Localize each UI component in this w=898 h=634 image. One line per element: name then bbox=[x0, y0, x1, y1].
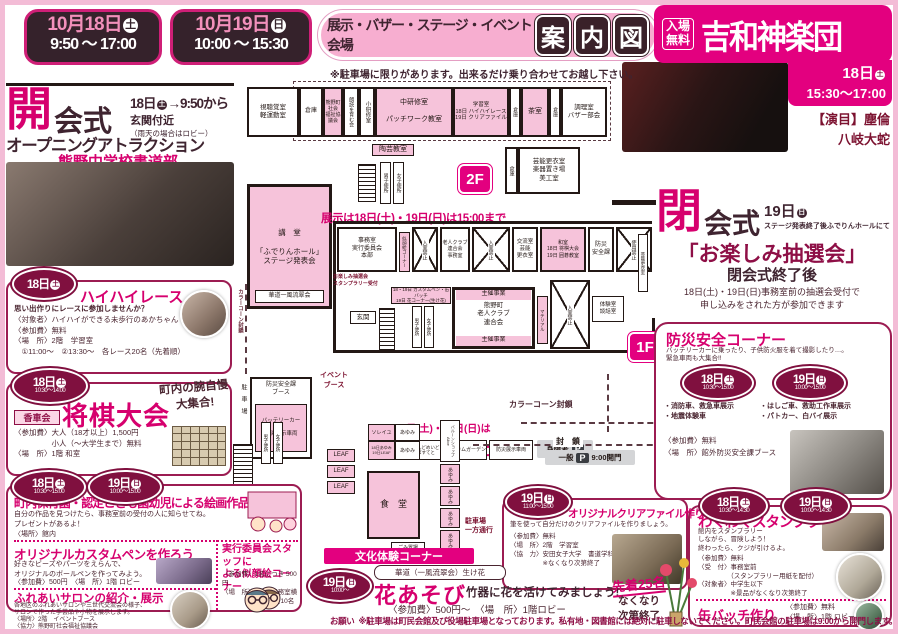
bousai-items-19: ・はしご車、救助工作車展示 ・パトカー、白バイ展示 bbox=[760, 402, 851, 422]
map-entrance: 玄関 bbox=[350, 311, 376, 324]
kaiga-desc: 自分の作品を見つけたら、事務室前の受付の人に知らせてね。 プレゼントがあるよ！ bbox=[14, 510, 210, 530]
venue-label: 展示・バザー・ステージ・イベント会場 bbox=[327, 15, 532, 55]
map-geino-room-1f: 芸能更衣室 bbox=[638, 234, 648, 292]
dow-circle: 土 bbox=[740, 498, 750, 508]
bousai-badge-18: 18日土 10:30～15:00 bbox=[682, 366, 754, 400]
event-flyer: 10月18日土 9:50 ～ 17:00 10月19日日 10:00 ～ 15:… bbox=[0, 0, 898, 634]
map-room-2f: 倉庫 bbox=[549, 87, 561, 137]
map-room-1f: 防災 安全課 bbox=[588, 227, 614, 272]
map-room-1f: 交流室 芸能 更衣室 bbox=[512, 227, 538, 272]
date-badge-oct18: 10月18日土 9:50 ～ 17:00 bbox=[24, 9, 162, 65]
map-general-parking: 一般P9:00開門 bbox=[545, 450, 635, 465]
bousai-fee: 〈参加費〉無料 bbox=[664, 436, 717, 447]
map-room-2f: 倉庫 bbox=[299, 87, 323, 137]
bousai-desc: バッテリーカーに乗ったり、子供防火服を着て撮影したり…。 緊急車両も大集合!! bbox=[666, 347, 848, 364]
map-toilet-female-2f: 女子便所 bbox=[393, 162, 404, 204]
dow-circle: 土 bbox=[875, 70, 885, 80]
dotted-divider bbox=[14, 540, 298, 542]
kagura-program: 【演目】塵倫 八岐大蛇 bbox=[790, 110, 890, 149]
hanaasobi-face-illustration bbox=[240, 582, 274, 616]
title-char: 案 bbox=[535, 15, 571, 56]
bousai-corner-panel: 防災安全コーナー バッテリーカーに乗ったり、子供防火服を着て撮影したり…。 緊急… bbox=[654, 322, 892, 500]
bousai-items-18: ・消防車、救急車展示 ・地震体験車 bbox=[664, 402, 734, 422]
kids-illustration bbox=[246, 490, 298, 534]
title-char: 内 bbox=[574, 15, 610, 56]
title-char: 図 bbox=[613, 15, 649, 56]
kagura-banner: 入場 無料 吉和神楽団 bbox=[654, 5, 892, 63]
map-alice-shop: バルーンショップAlice bbox=[440, 420, 460, 462]
map-tenant: あゆみ bbox=[395, 424, 420, 441]
dow-circle: 日 bbox=[346, 578, 356, 588]
dow-circle: 日 bbox=[271, 18, 286, 33]
map-shusai-label: 主催事業 bbox=[456, 290, 531, 300]
map-taiken-room: 体験室 談話室 bbox=[592, 296, 624, 322]
map-room-1f: 事務室 実行委員会 本部 bbox=[337, 227, 397, 272]
shogi-club-chip: 香車会 bbox=[14, 410, 60, 425]
opening-section: 開 会式 18日土→9:50から 玄関付近 （雨天の場合はロビー） オープニング… bbox=[6, 86, 234, 268]
dow-circle: 日 bbox=[816, 375, 826, 385]
closing-title-rest: 会式 bbox=[704, 202, 760, 242]
map-room-2f: 熊野町社会 福祉協議会 bbox=[323, 87, 343, 137]
map-no-entry-room: 入室禁止 bbox=[412, 227, 438, 272]
map-cone-line bbox=[521, 422, 663, 424]
haihai-details: 〈対象者〉ハイハイができる未歩行のあかちゃん 〈参加費〉無料 〈場 所〉2階 学… bbox=[14, 315, 185, 357]
salon-photo bbox=[170, 590, 210, 630]
haihai-baby-photo bbox=[180, 290, 228, 338]
map-no-entry-room: 入室禁止 bbox=[472, 227, 510, 272]
shogi-details: 〈参加費〉大人（18才以上）1,500円 小人（～大学生まで）無料 〈場 所〉1… bbox=[14, 428, 142, 460]
date-badge-oct19: 10月19日日 10:00 ～ 15:30 bbox=[170, 9, 312, 65]
dow-circle: 土 bbox=[56, 378, 66, 388]
footer-note: お願い※駐車場は町民会館及び役場駐車場となっております。私有地・図書館には絶対に… bbox=[330, 615, 897, 627]
stamp-rally-panel: わくわくスタンプラリー 館内をスタンプラリー しながら、冒険しよう！ 終わったら… bbox=[688, 505, 892, 627]
dow-circle: 土 bbox=[123, 18, 138, 33]
floor-2f-badge: 2F bbox=[458, 164, 492, 194]
map-room-2f: 学習室 18日 ハイハイレース 19日 クリアファイル bbox=[453, 87, 509, 137]
map-room-1f: 似顔絵コーナー bbox=[399, 232, 410, 272]
custompen-desc: 好きなビーズやパーツをえらんで、 オリジナルのボールペンを作ってみよう。 bbox=[14, 560, 146, 580]
map-event-booth-label: イベント ブース bbox=[312, 370, 356, 390]
map-cafeteria: 食 堂 bbox=[367, 471, 420, 539]
map-ayumi-strip: あゆみ bbox=[440, 486, 460, 506]
closing-title-big: 閉 bbox=[656, 188, 702, 234]
map-room-2f: 視聴覚室 軽運動室 bbox=[247, 87, 299, 137]
map-leaf-chip: LEAF bbox=[327, 481, 355, 494]
map-room-2f: 倉庫 bbox=[509, 87, 521, 137]
bousai-badge-19: 19日日 10:00～15:00 bbox=[774, 366, 846, 400]
map-cone-left-label: カラーコーン封鎖 bbox=[233, 289, 244, 369]
map-craft-reception: 18・19日 カスタムペン・缶バッチ 19日 花コーナー(生け花) bbox=[391, 287, 451, 304]
shogi-board-illustration bbox=[172, 426, 226, 466]
dow-circle: 土 bbox=[55, 479, 65, 489]
map-material-label: マテリアル bbox=[537, 296, 548, 344]
stamp-desc: 館内をスタンプラリー しながら、冒険しよう！ 終わったら、クジが引けるよ。 bbox=[698, 528, 789, 553]
stamp-badge-18: 18日土 10:30～14:30 bbox=[700, 489, 768, 523]
map-parking-left-label: 駐 車 場 bbox=[237, 384, 248, 446]
shogi-date-badge: 18日土 10:30～14:00 bbox=[12, 368, 88, 404]
map-room-2f: 小研修室 bbox=[359, 87, 375, 137]
map-room-1f: 和室 18日 将棋大会 19日 囲碁教室 bbox=[540, 227, 586, 272]
map-tenant: あゆみ bbox=[395, 441, 420, 460]
map-fusa-label: 封 鎖 bbox=[553, 436, 583, 447]
date-text: 10月19日日 bbox=[173, 15, 309, 35]
lottery-after: 閉会式終了後 bbox=[652, 264, 892, 285]
custompen-photo bbox=[156, 558, 212, 584]
dow-circle: 日 bbox=[544, 494, 554, 504]
kaiga-place: 〈場所〉館内 bbox=[14, 530, 56, 540]
clearfile-desc: 筆を使って自分だけのクリアファイルを作りましょう。 bbox=[510, 520, 672, 529]
map-leaf-chip: LEAF bbox=[327, 465, 355, 478]
map-room-2f: 朗読を育む会 bbox=[343, 87, 359, 137]
map-toilet-male-1f: 男子便所 bbox=[412, 306, 422, 348]
map-leaf-chip: LEAF bbox=[327, 449, 355, 462]
dow-circle: 土 bbox=[157, 100, 167, 110]
bousai-photo bbox=[790, 430, 884, 494]
dow-circle: 土 bbox=[724, 375, 734, 385]
map-geino-room-2f: 芸能更衣室 楽器置き場 美工室 bbox=[518, 147, 580, 194]
stamp-photo-2 bbox=[836, 553, 884, 601]
map-ayumi-strip: あゆみ bbox=[440, 464, 460, 484]
map-cone-right-label: カラーコーン封鎖 bbox=[509, 399, 573, 410]
map-toilet-female-1f: 女子便所 bbox=[424, 306, 434, 348]
footer-text: ※駐車場は町民会館及び役場駐車場となっております。私有地・図書館には絶対に駐車し… bbox=[358, 616, 897, 626]
dow-circle: 日 bbox=[797, 208, 807, 218]
map-room-2f: 調理室 バザー部会 bbox=[561, 87, 607, 137]
shogi-catch: 町内の腕自慢 大集合! bbox=[159, 377, 231, 415]
map-ayumi-strip: あゆみ bbox=[440, 508, 460, 528]
map-rouin-club-label: 熊野町 老人クラブ 連合会 bbox=[456, 302, 531, 327]
salon-details: 〈場所〉2階 イベントブース 〈協力〉熊野町社会福祉協議会 bbox=[14, 607, 98, 631]
bousai-place: 〈場 所〉館外防災安全課ブース bbox=[664, 448, 776, 459]
clearfile-date-badge: 19日日 11:00～15:00 bbox=[505, 486, 571, 518]
time-text: 9:50 ～ 17:00 bbox=[27, 35, 159, 54]
kaiga-date-badge-18: 18日土 10:30～15:00 bbox=[12, 470, 86, 504]
stamp-details: 〈参加費〉無料 〈受 付〉事務室前 （スタンプラリー用紙を配付） 〈対象者〉中学… bbox=[698, 555, 818, 599]
dotted-divider-v bbox=[216, 540, 218, 610]
divider-bar bbox=[612, 200, 656, 205]
map-shusai-label: 主催事業 bbox=[456, 336, 531, 346]
time-text: 10:00 ～ 15:30 bbox=[173, 35, 309, 54]
map-lottery-reception: お楽しみ抽選会 スタンプラリー受付 bbox=[333, 274, 397, 287]
dow-circle: 土 bbox=[50, 280, 60, 290]
footer-label: お願い bbox=[330, 616, 354, 626]
map-stairs-1f bbox=[379, 308, 395, 350]
opening-photo bbox=[6, 162, 234, 266]
parking-icon: P bbox=[576, 453, 588, 463]
map-booth: 防災展示車両 bbox=[489, 440, 533, 460]
map-stairs-2f bbox=[358, 164, 376, 202]
bunka-date-badge: 19日日 10:00～ bbox=[308, 570, 372, 602]
opening-title-big: 開 bbox=[6, 86, 52, 132]
bunka-header-chip: 文化体験コーナー bbox=[324, 548, 474, 564]
lottery-desc: 18日(土)・19日(日)事務室前の抽選会受付で 申し込みをされた方が参加できま… bbox=[652, 286, 892, 311]
map-room-1f: 老人クラブ 連合会 事務室 bbox=[440, 227, 470, 272]
kaiga-date-badge-19: 19日日 10:00～15:00 bbox=[88, 470, 162, 504]
venue-banner: 展示・バザー・ステージ・イベント会場 案 内 図 bbox=[318, 10, 658, 60]
map-cone-left-line bbox=[245, 284, 247, 374]
hanaasobi-sub: 竹器に花を活けてみましょう! bbox=[466, 584, 619, 600]
map-tenant: 18日あゆみ 19日LEAF bbox=[368, 441, 395, 460]
haihai-date-badge: 18日土 bbox=[12, 268, 76, 300]
map-ayumi-strip: あゆみ bbox=[440, 530, 460, 550]
kagura-troupe-name: 吉和神楽団 bbox=[701, 10, 841, 58]
map-toilet-female-out: 女子便所 bbox=[273, 422, 283, 464]
custompen-fee: 〈参加費〉500円 〈場 所〉1階 ロビー bbox=[14, 578, 140, 588]
map-toilet-male-2f: 男子便所 bbox=[380, 162, 391, 204]
map-tougei-room: 陶芸教室 bbox=[372, 144, 414, 156]
map-toilet-male-out: 男子便所 bbox=[261, 422, 271, 464]
closing-when: 19日日 ステージ発表終了後ふでりんホールにて bbox=[764, 200, 892, 231]
dow-circle: 日 bbox=[131, 479, 141, 489]
map-no-entry-room: 入室禁止 bbox=[550, 280, 590, 349]
free-admission-label: 入場 無料 bbox=[662, 18, 694, 50]
map-room-2f: 茶室 bbox=[521, 87, 549, 137]
map-oneway-label: 駐車場 一方通行 bbox=[465, 517, 493, 535]
date-text: 10月18日土 bbox=[27, 15, 159, 35]
map-tenant: ソレイユ bbox=[368, 424, 395, 441]
haihai-lead: 思い出作りにレースに参加しませんか？ bbox=[14, 304, 148, 315]
clearfile-title: オリジナルクリアファイル作り! bbox=[568, 506, 707, 521]
closing-section: 閉 会式 19日日 ステージ発表終了後ふでりんホールにて 「お楽しみ抽選会」 閉… bbox=[652, 188, 892, 318]
kagura-photo bbox=[622, 62, 788, 152]
dow-circle: 日 bbox=[822, 498, 832, 508]
kagura-schedule: 18日土 15:30～17:00 bbox=[788, 60, 892, 106]
map-hall-kadou-chip: 華道一風流翠会 bbox=[255, 290, 324, 303]
parking-note: ※駐車場に限りがあります。出来るだけ乗り合わせてお越し下さい。 bbox=[330, 66, 638, 81]
map-room-2f: 中研修室 パッチワーク教室 bbox=[375, 87, 453, 137]
stamp-badge-19: 19日日 10:00～14:30 bbox=[782, 489, 850, 523]
map-storage-2f: 倉庫 bbox=[505, 147, 518, 194]
